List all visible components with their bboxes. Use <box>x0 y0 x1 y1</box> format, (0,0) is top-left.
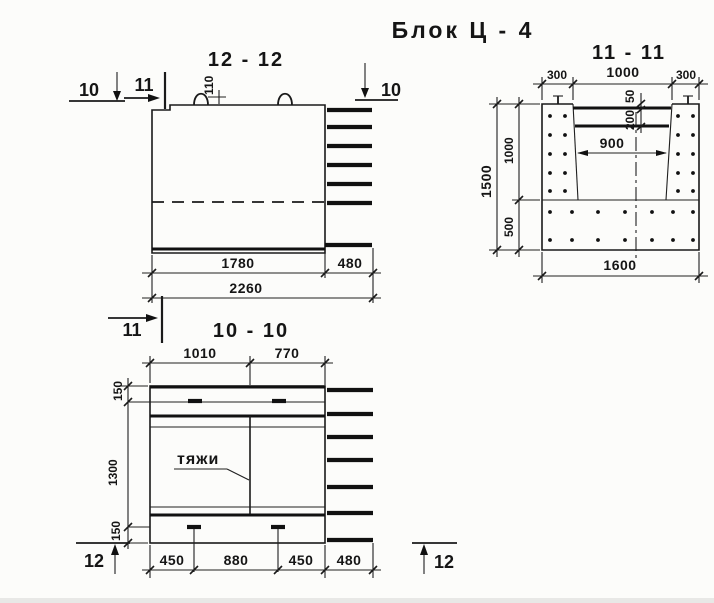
arrow-up-icon <box>111 544 119 555</box>
dim-1010: 1010 <box>183 345 216 361</box>
dims-11-11-left: 1500 1000 500 <box>478 97 540 257</box>
dim-880: 880 <box>224 552 249 568</box>
section-11-11-label: 11 - 11 <box>592 42 666 64</box>
cut-marker-12-right-label: 12 <box>434 552 454 572</box>
block-outline-10-10 <box>128 386 325 572</box>
section-10-10: 10 - 10 1010 770 <box>76 320 457 578</box>
cut-marker-12-left-label: 12 <box>84 551 104 571</box>
dim-770: 770 <box>275 345 300 361</box>
block-outline-11-11 <box>542 96 699 258</box>
cut-marker-10-left: 10 <box>69 72 125 101</box>
dim-300-left: 300 <box>547 68 567 82</box>
dim-1000-top: 1000 <box>606 64 639 80</box>
dim-900: 900 <box>600 135 625 151</box>
dim-150-bottom: 150 <box>109 521 123 541</box>
dim-300-right: 300 <box>676 68 696 82</box>
dim-110: 110 <box>202 75 216 95</box>
ties-annotation: тяжи <box>174 451 249 480</box>
cut-marker-10-left-label: 10 <box>79 80 99 100</box>
rebar-bars-10-10 <box>327 390 373 540</box>
dim-480-top: 480 <box>338 255 363 271</box>
block-outline-12-12 <box>152 94 325 253</box>
dim-500: 500 <box>502 217 516 237</box>
dim-1000-side: 1000 <box>502 137 516 164</box>
cut-marker-11-top-label: 11 <box>134 75 153 95</box>
dims-10-10-bottom: 450 880 450 480 <box>142 543 381 578</box>
dim-900-group: 900 <box>577 135 667 156</box>
dims-11-11-depth: 50 200 <box>623 89 645 133</box>
blueprint-drawing: Блок Ц - 4 12 - 12 10 11 <box>0 0 714 598</box>
cut-marker-12-right: 12 <box>412 543 457 574</box>
cut-marker-10-right: 10 <box>355 63 401 100</box>
dim-50: 50 <box>623 89 637 103</box>
dim-480-bottom: 480 <box>337 552 362 568</box>
dim-1600: 1600 <box>603 257 636 273</box>
cut-marker-12-left: 12 <box>76 543 130 574</box>
dim-2260: 2260 <box>229 280 262 296</box>
dim-150-top: 150 <box>111 381 125 401</box>
lifting-loop-icon <box>278 94 292 105</box>
dims-11-11-top: 300 1000 300 <box>533 64 708 100</box>
arrow-up-icon <box>420 544 428 555</box>
dim-110-group: 110 <box>202 75 226 104</box>
dim-450-left: 450 <box>160 552 185 568</box>
cut-marker-11-bottom: 11 <box>108 296 162 343</box>
dims-10-10-top: 1010 770 <box>142 345 333 385</box>
blueprint-page: Блок Ц - 4 12 - 12 10 11 <box>0 0 714 598</box>
dims-11-11-bottom: 1600 <box>533 252 708 283</box>
section-12-12-label: 12 - 12 <box>208 49 284 71</box>
cut-marker-10-right-label: 10 <box>381 80 401 100</box>
arrow-down-icon <box>361 88 369 98</box>
dims-12-12: 1780 480 2260 <box>142 248 381 303</box>
section-11-11: 11 - 11 300 1000 300 <box>478 42 708 283</box>
dim-1780: 1780 <box>221 255 254 271</box>
cut-marker-11-bottom-label: 11 <box>122 320 141 340</box>
drawing-title-text: Блок Ц - 4 <box>392 17 535 43</box>
arrow-down-icon <box>113 91 121 101</box>
dim-1500: 1500 <box>478 165 494 198</box>
ties-label: тяжи <box>177 451 219 468</box>
dims-10-10-left: 150 1300 150 <box>106 378 148 549</box>
rebar-dots-11-11 <box>548 114 695 242</box>
dim-450-right: 450 <box>289 552 314 568</box>
section-10-10-label: 10 - 10 <box>213 320 289 342</box>
dim-200: 200 <box>623 110 637 130</box>
section-12-12: 12 - 12 10 11 110 <box>69 49 401 343</box>
arrow-left-icon <box>577 150 588 156</box>
cut-marker-11-top: 11 <box>124 72 165 109</box>
arrow-right-icon <box>656 150 667 156</box>
arrow-right-icon <box>148 94 160 102</box>
arrow-right-icon <box>146 314 158 322</box>
dim-1300: 1300 <box>106 459 120 486</box>
rebar-bars-12-12 <box>325 110 372 245</box>
